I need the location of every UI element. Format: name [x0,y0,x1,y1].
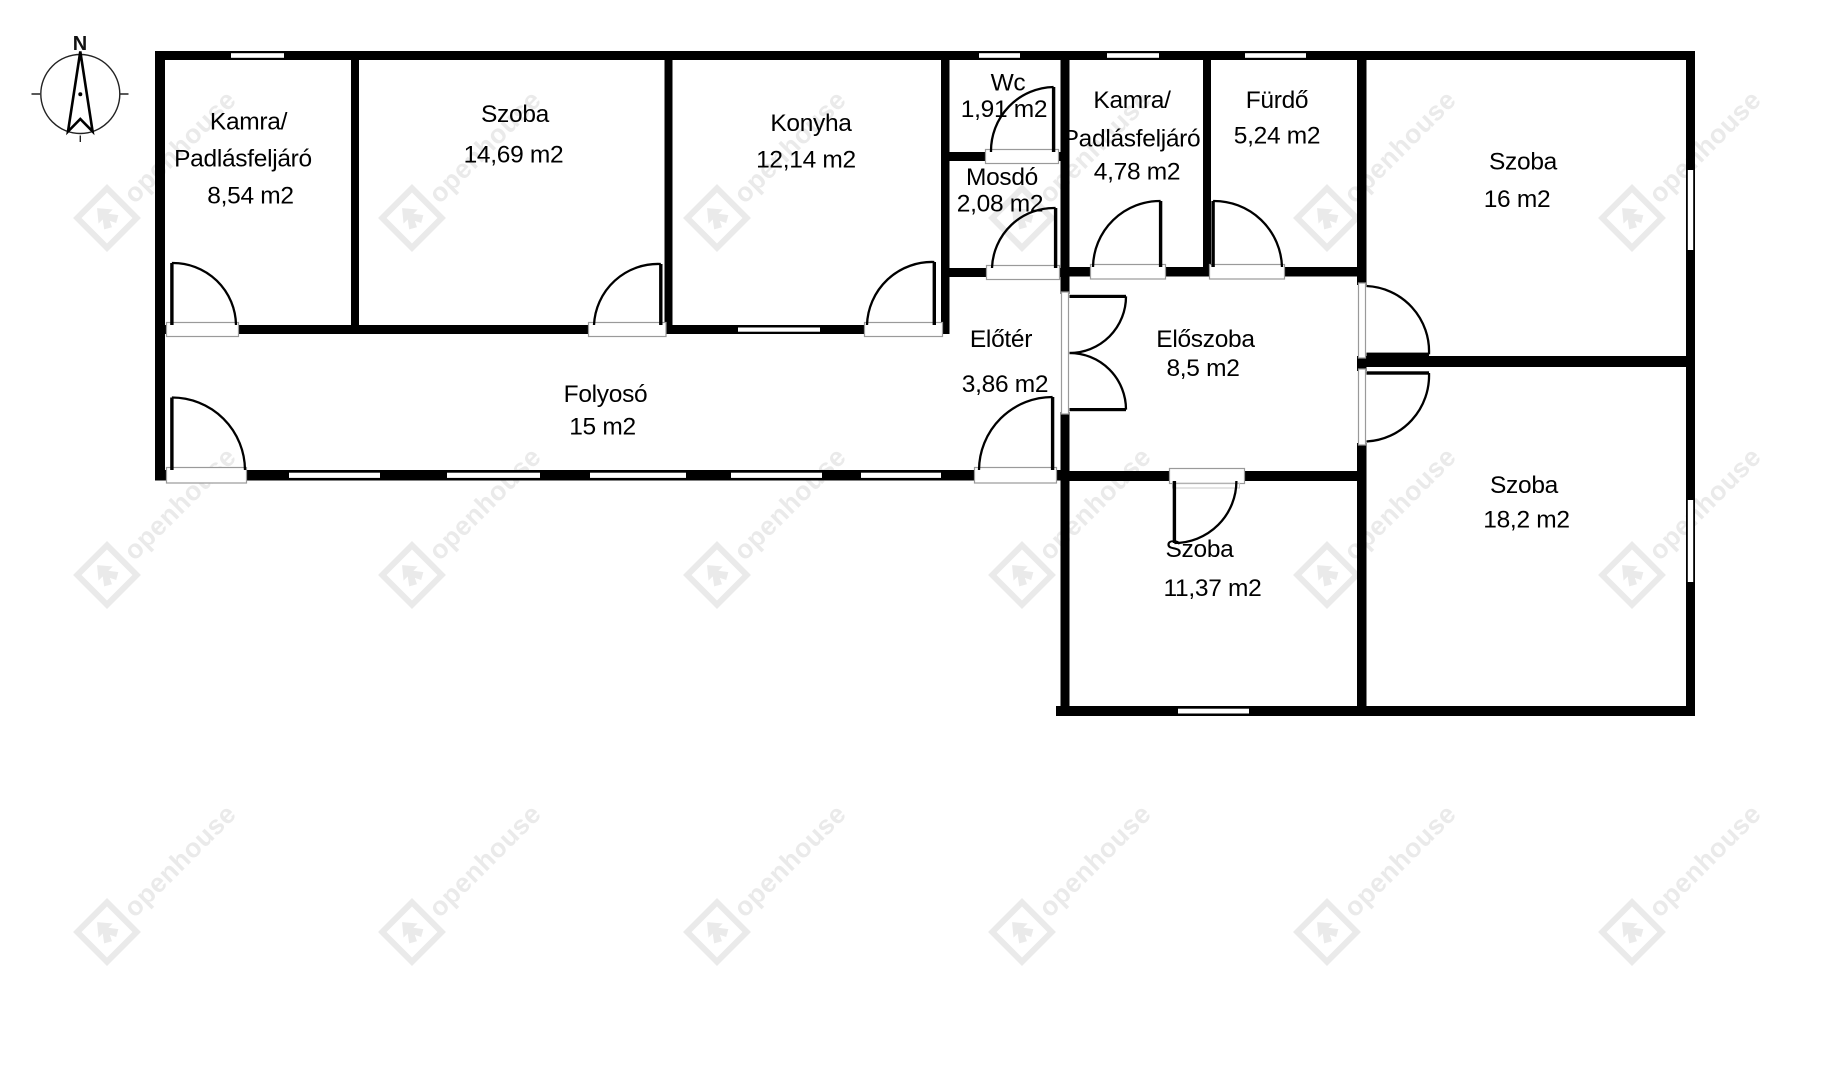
svg-text:15 m2: 15 m2 [569,414,636,441]
svg-text:Előtér: Előtér [970,326,1032,353]
svg-text:12,14 m2: 12,14 m2 [756,147,856,174]
svg-text:Konyha: Konyha [770,110,852,137]
svg-text:Mosdó: Mosdó [966,164,1038,191]
svg-text:Előszoba: Előszoba [1156,326,1255,353]
svg-text:5,24 m2: 5,24 m2 [1234,123,1320,150]
svg-text:14,69 m2: 14,69 m2 [464,142,564,169]
svg-text:Kamra/: Kamra/ [1093,87,1171,114]
svg-text:Szoba: Szoba [1166,536,1235,563]
svg-text:16 m2: 16 m2 [1484,186,1551,213]
svg-text:4,78 m2: 4,78 m2 [1094,159,1180,186]
svg-text:3,86 m2: 3,86 m2 [962,371,1048,398]
svg-text:Szoba: Szoba [1489,148,1558,175]
svg-text:2,08 m2: 2,08 m2 [957,191,1043,218]
svg-text:8,5 m2: 8,5 m2 [1166,355,1239,382]
svg-text:1,91 m2: 1,91 m2 [961,96,1047,123]
svg-text:Wc: Wc [991,70,1026,97]
svg-text:11,37 m2: 11,37 m2 [1164,575,1262,602]
svg-text:18,2 m2: 18,2 m2 [1483,507,1569,534]
svg-text:Padlásfeljáró: Padlásfeljáró [174,146,312,173]
svg-text:Padlásfeljáró: Padlásfeljáró [1063,126,1201,153]
svg-text:Folyosó: Folyosó [564,381,648,408]
svg-text:Kamra/: Kamra/ [210,109,288,136]
svg-text:8,54 m2: 8,54 m2 [207,183,293,210]
svg-text:Szoba: Szoba [481,101,550,128]
svg-text:Fürdő: Fürdő [1246,87,1309,114]
svg-text:Szoba: Szoba [1490,472,1559,499]
